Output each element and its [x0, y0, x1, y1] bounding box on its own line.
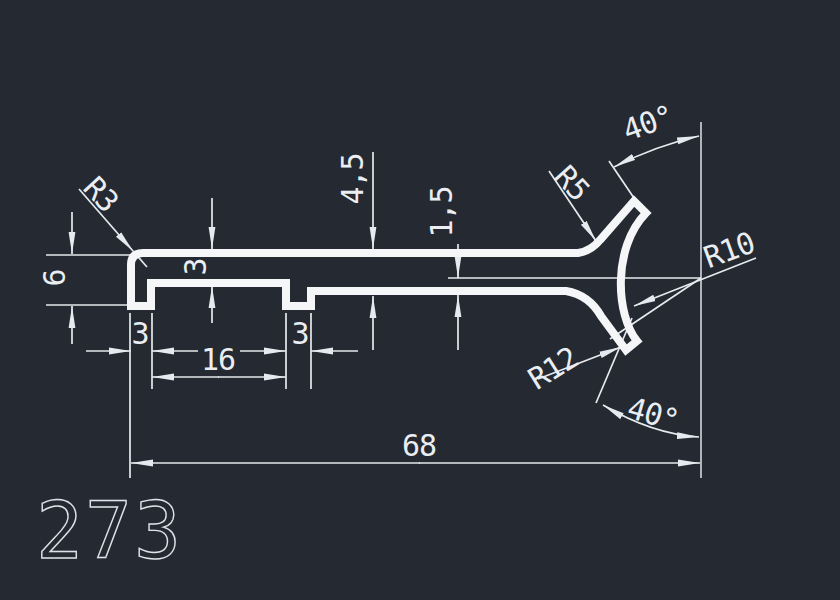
dim-label-lower-arm-angle: 40° [624, 390, 683, 438]
dim-label-notch-width: 3 [291, 316, 308, 351]
drawing-number: 273 [36, 486, 183, 576]
cad-drawing-canvas: 6 R3 3 4,5 1,5 R5 40° R10 [0, 0, 840, 600]
dim-label-upper-fillet-radius: R5 [548, 159, 597, 208]
dim-label-web-thickness: 1,5 [424, 186, 459, 237]
dim-label-overall-length: 68 [402, 428, 436, 463]
dim-label-end-height: 6 [37, 269, 72, 286]
dim-top-thickness: 3 [178, 198, 213, 323]
dim-label-upper-arm-angle: 40° [618, 98, 678, 148]
dim-label-groove-width: 16 [201, 342, 235, 377]
dim-web-thickness: 1,5 [424, 186, 702, 350]
dim-upper-fillet-radius: R5 [548, 159, 597, 241]
dim-label-corner-radius: R3 [77, 170, 126, 219]
dim-label-lower-fillet-radius: R12 [522, 340, 584, 397]
dim-label-foot-width: 3 [131, 316, 148, 351]
dim-upper-arm-angle: 40° [609, 98, 699, 201]
dim-label-web-depth: 4,5 [335, 153, 370, 204]
dim-label-top-thickness: 3 [178, 258, 213, 275]
dim-lower-fillet-radius: R12 [522, 340, 621, 397]
extension-line [609, 161, 636, 201]
dim-label-inner-arc-radius: R10 [699, 225, 759, 275]
dim-foot-width: 3 [86, 316, 198, 352]
drawing-svg: 6 R3 3 4,5 1,5 R5 40° R10 [0, 0, 840, 600]
